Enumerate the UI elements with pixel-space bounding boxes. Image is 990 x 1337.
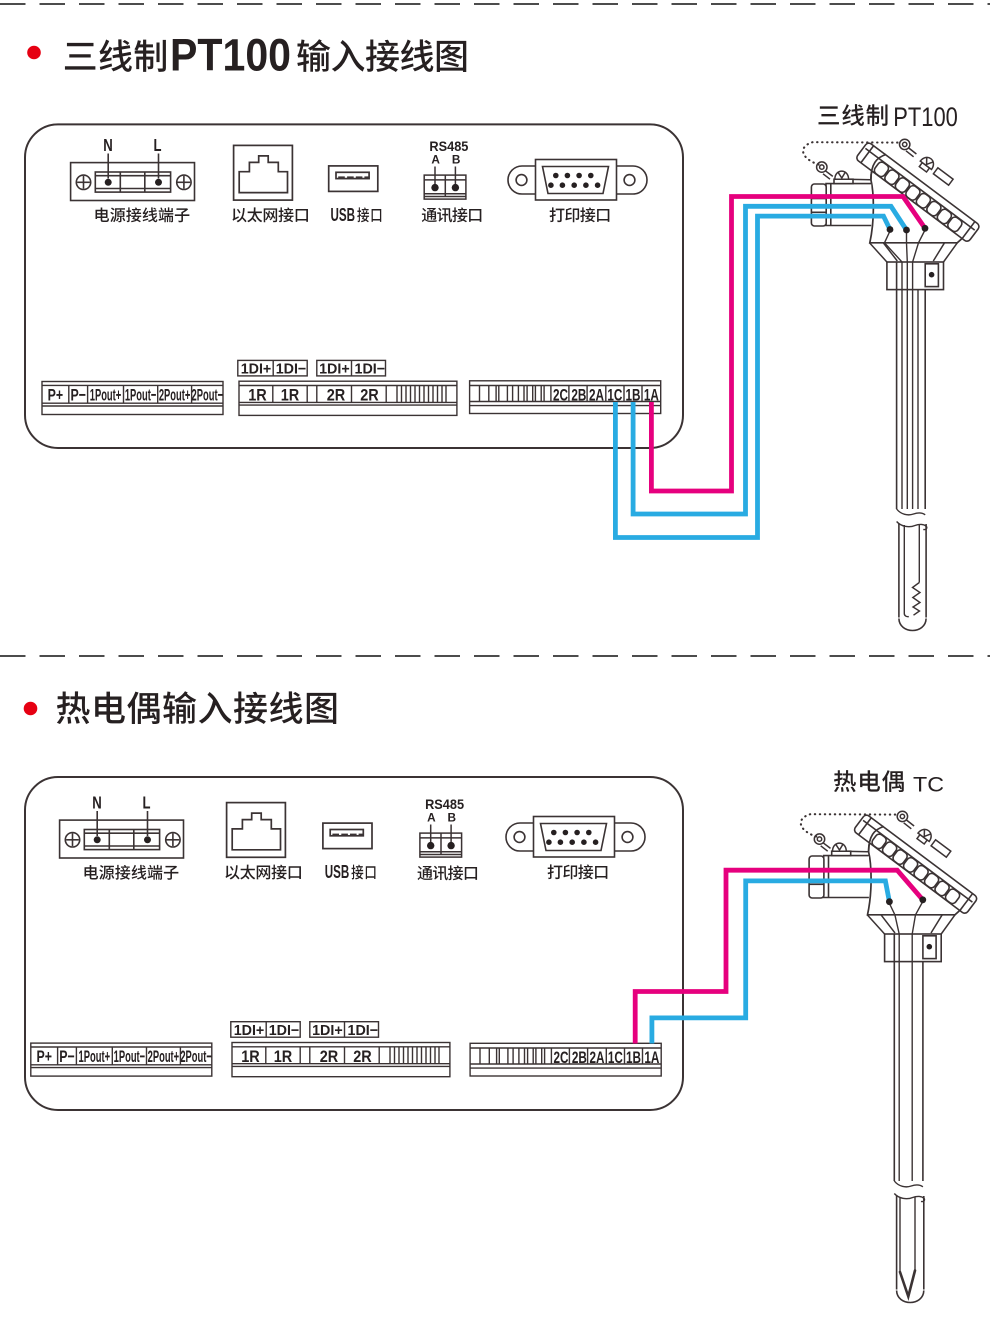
svg-text:1Pout+: 1Pout+	[90, 385, 122, 404]
svg-text:1DI+: 1DI+	[241, 361, 272, 378]
svg-text:2Pout+: 2Pout+	[148, 1047, 180, 1066]
svg-text:2R: 2R	[360, 386, 379, 405]
svg-text:1R: 1R	[241, 1047, 260, 1066]
svg-text:2B: 2B	[572, 1048, 587, 1067]
svg-text:1DI−: 1DI−	[355, 361, 386, 378]
svg-text:2C: 2C	[553, 385, 568, 404]
svg-text:2A: 2A	[590, 1048, 605, 1067]
svg-text:P−: P−	[59, 1047, 75, 1066]
svg-text:1R: 1R	[248, 386, 267, 405]
svg-text:2R: 2R	[353, 1047, 372, 1066]
svg-text:2Pout−: 2Pout−	[180, 1047, 212, 1066]
svg-text:P+: P+	[48, 385, 64, 404]
svg-text:2C: 2C	[554, 1048, 569, 1067]
svg-text:1DI+: 1DI+	[312, 1022, 343, 1039]
svg-text:1B: 1B	[626, 385, 641, 404]
svg-text:B: B	[452, 153, 461, 167]
svg-text:2B: 2B	[571, 385, 586, 404]
svg-text:1C: 1C	[607, 385, 622, 404]
svg-text:1Pout−: 1Pout−	[114, 1047, 146, 1066]
svg-text:P−: P−	[70, 385, 86, 404]
svg-text:A: A	[431, 153, 440, 167]
svg-text:N: N	[92, 793, 102, 813]
svg-text:1DI+: 1DI+	[319, 361, 350, 378]
svg-text:2R: 2R	[327, 386, 346, 405]
svg-text:1DI−: 1DI−	[269, 1022, 300, 1039]
svg-text:1R: 1R	[274, 1047, 293, 1066]
svg-text:1DI−: 1DI−	[348, 1022, 379, 1039]
svg-text:1DI+: 1DI+	[234, 1022, 265, 1039]
svg-text:2Pout−: 2Pout−	[192, 385, 224, 404]
svg-text:2R: 2R	[320, 1047, 339, 1066]
svg-text:PT100: PT100	[893, 102, 958, 132]
svg-text:B: B	[448, 811, 457, 825]
svg-text:2A: 2A	[589, 385, 604, 404]
svg-text:1A: 1A	[644, 1048, 659, 1067]
svg-text:USB: USB	[331, 204, 356, 225]
svg-text:1C: 1C	[608, 1048, 623, 1067]
svg-text:RS485: RS485	[425, 797, 464, 812]
svg-text:1DI−: 1DI−	[276, 361, 307, 378]
svg-text:1A: 1A	[644, 385, 659, 404]
svg-text:RS485: RS485	[429, 139, 468, 154]
svg-text:1R: 1R	[281, 386, 300, 405]
svg-text:A: A	[427, 811, 436, 825]
svg-text:P+: P+	[36, 1047, 52, 1066]
svg-text:USB: USB	[325, 861, 350, 882]
svg-text:L: L	[154, 135, 162, 155]
svg-text:PT100: PT100	[170, 29, 291, 80]
svg-text:1B: 1B	[626, 1048, 641, 1067]
svg-text:N: N	[103, 135, 113, 155]
svg-text:2Pout+: 2Pout+	[159, 385, 191, 404]
svg-text:1Pout+: 1Pout+	[79, 1047, 111, 1066]
svg-text:1Pout−: 1Pout−	[125, 385, 157, 404]
svg-text:TC: TC	[913, 773, 944, 797]
svg-text:L: L	[143, 793, 151, 813]
